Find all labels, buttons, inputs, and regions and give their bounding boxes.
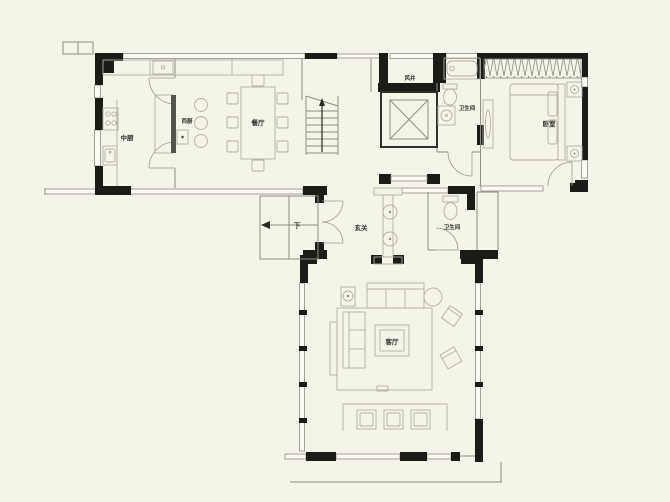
chaise-sofa: [343, 312, 365, 368]
staircase: [306, 96, 338, 155]
accent-chair-1: [442, 306, 463, 327]
toilet-upper: [443, 84, 457, 105]
floorplan-drawing: 中厨 西厨 餐厅 风井 卫生间 卧室 玄关 卫生间 下 客厅: [0, 0, 670, 502]
room-label-bath-mid: 卫生间: [444, 223, 461, 231]
window-bench: [343, 386, 447, 431]
room-label-bath-upper: 卫生间: [459, 104, 476, 112]
room-label-living: 客厅: [385, 337, 400, 346]
nightstand-bottom: [567, 146, 582, 161]
kitchen-sink: [103, 146, 117, 165]
stair-down-area: [260, 196, 318, 259]
bedroom-cabinet: [483, 100, 493, 148]
interior-walls: [175, 59, 498, 250]
room-label-kitchen: 中厨: [121, 133, 135, 142]
elevator: [381, 92, 437, 147]
bathtub: [444, 58, 480, 79]
floorplan-canvas: 中厨 西厨 餐厅 风井 卫生间 卧室 玄关 卫生间 下 客厅: [0, 0, 670, 502]
toilet-mid: [443, 196, 458, 220]
room-label-stair-down: 下: [294, 222, 301, 230]
bed: [510, 84, 565, 160]
wardrobe: [484, 59, 581, 78]
room-label-west-kitchen: 西厨: [181, 117, 193, 125]
accent-chair-2: [440, 347, 462, 369]
room-label-foyer: 玄关: [355, 223, 369, 232]
nightstand-top: [567, 82, 582, 97]
room-label-dining: 餐厅: [251, 118, 266, 127]
room-label-air-shaft: 风井: [404, 74, 416, 82]
room-label-bedroom: 卧室: [543, 119, 557, 128]
plant-table: [341, 287, 355, 306]
sink-upper: [438, 106, 455, 125]
kitchen-stove: [103, 108, 118, 130]
tv-console: [330, 322, 337, 375]
foyer-console: [374, 188, 402, 264]
round-ottoman: [424, 288, 442, 306]
sofa-three-seat: [367, 283, 424, 308]
